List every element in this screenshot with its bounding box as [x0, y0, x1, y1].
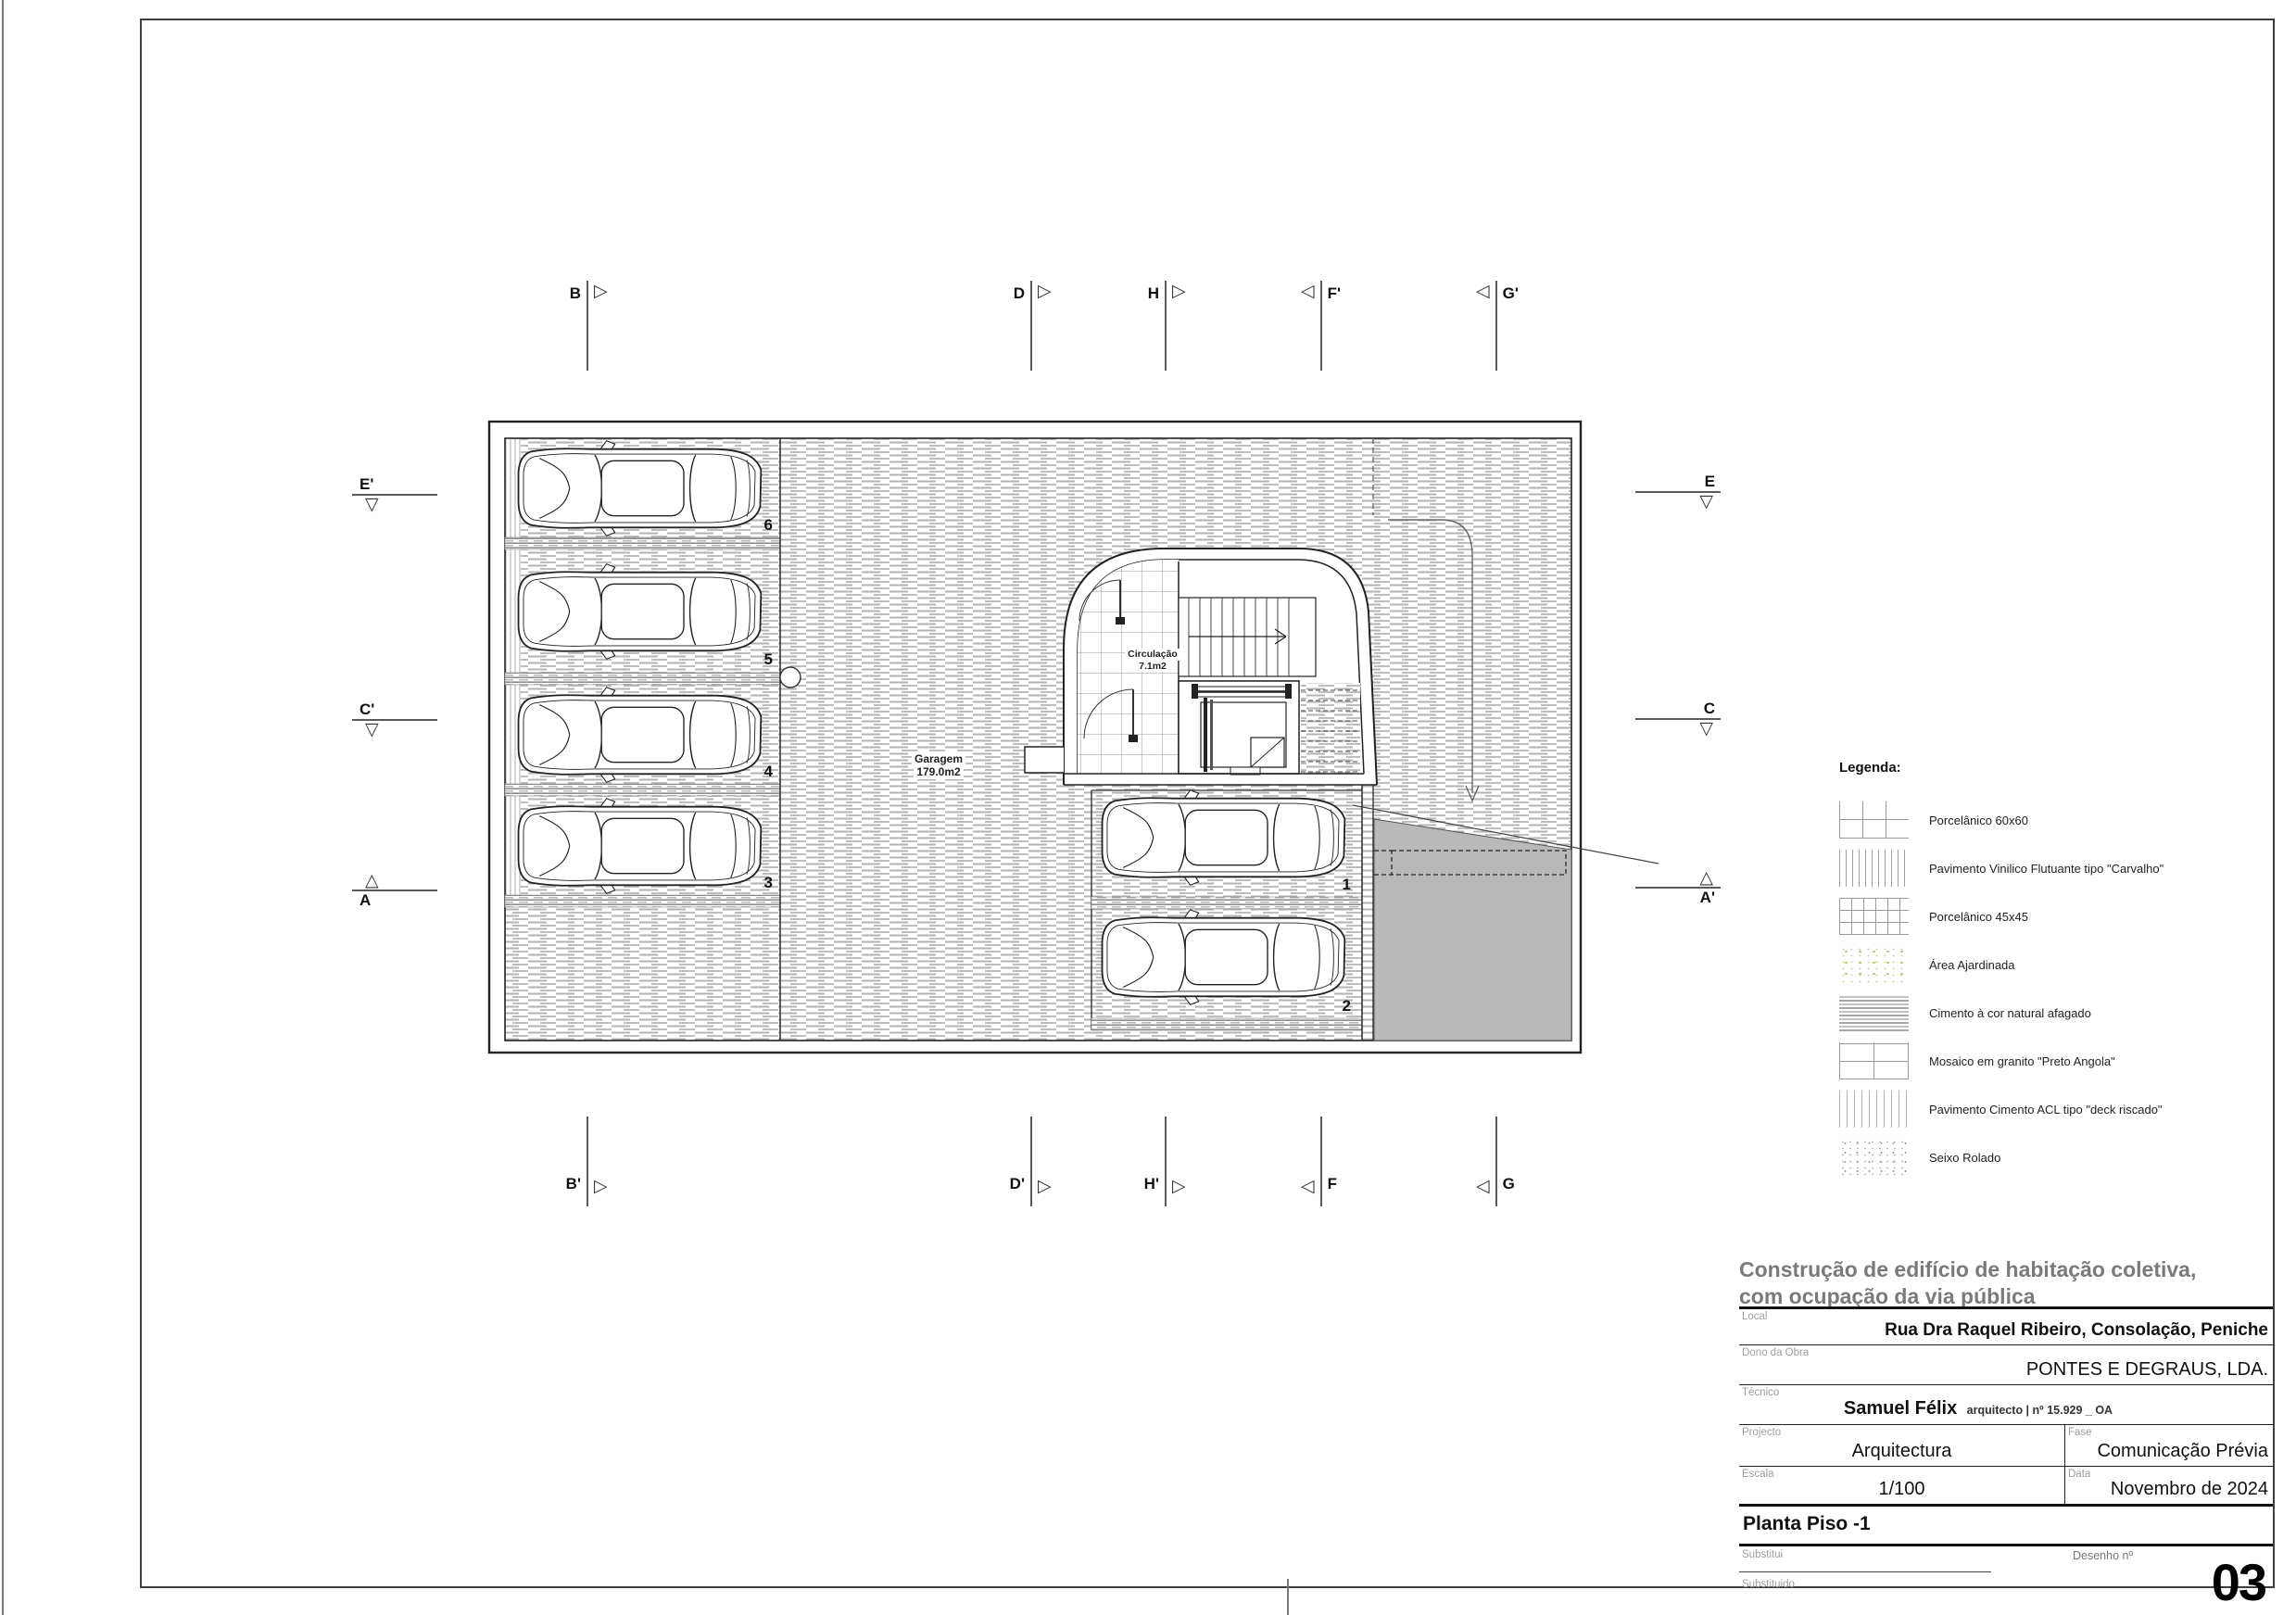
section-label: E — [1635, 473, 1721, 491]
legend-item-label: Mosaico em granito "Preto Angola" — [1929, 1054, 2115, 1068]
phase-value: Comunicação Prévia — [2097, 1441, 2268, 1462]
legend-item: Seixo Rolado — [1839, 1133, 2228, 1181]
section-marker-f-prime: ◁ F' — [1301, 281, 1352, 371]
section-line — [1030, 281, 1032, 371]
section-arrow-down-icon: ▽ — [365, 721, 437, 738]
owner-value: PONTES E DEGRAUS, LDA. — [2026, 1359, 2268, 1381]
section-marker-b-prime: B' ▷ — [557, 1117, 608, 1206]
replaces-label: Substitui — [1742, 1549, 1783, 1560]
section-label: E' — [352, 475, 437, 494]
section-line — [1320, 281, 1322, 371]
technician-label: Técnico — [1742, 1387, 1779, 1398]
section-label: A — [352, 891, 437, 910]
title-block-row-owner: Dono da Obra PONTES E DEGRAUS, LDA. — [1739, 1344, 2273, 1384]
phase-cell: Fase Comunicação Prévia — [2064, 1425, 2273, 1466]
section-marker-c: C ▽ — [1635, 700, 1721, 738]
legend-item-label: Pavimento Cimento ACL tipo "deck riscado… — [1929, 1103, 2163, 1117]
date-value: Novembro de 2024 — [2111, 1479, 2268, 1500]
section-label: F' — [1328, 284, 1352, 303]
section-arrow-right-icon: ▷ — [594, 283, 608, 300]
title-block-row-local: Local Rua Dra Raquel Ribeiro, Consolação… — [1739, 1306, 2273, 1344]
drawing-number-label: Desenho nº — [2073, 1549, 2133, 1562]
scale-cell: Escala 1/100 — [1739, 1467, 2064, 1504]
garden-area-swatch-icon — [1839, 946, 1909, 983]
room-label-garage: Garagem 179.0m2 — [880, 752, 997, 779]
owner-label: Dono da Obra — [1742, 1347, 1809, 1358]
section-arrow-left-icon: ◁ — [1301, 283, 1315, 300]
project-label: Projecto — [1742, 1427, 1781, 1438]
stall-number-4: 4 — [747, 763, 773, 781]
project-value: Arquitectura — [1739, 1441, 2064, 1462]
section-line — [1320, 1117, 1322, 1206]
legend-item: Área Ajardinada — [1839, 940, 2228, 989]
room-area: 7.1m2 — [1136, 661, 1169, 673]
section-line — [587, 281, 588, 371]
section-arrow-right-icon: ▷ — [1038, 1178, 1052, 1195]
room-label-circulation: Circulação 7.1m2 — [1104, 649, 1201, 672]
project-title-line1: Construção de edifício de habitação cole… — [1739, 1256, 2273, 1283]
section-label: C' — [352, 700, 437, 719]
section-marker-g-prime: ◁ G' — [1476, 281, 1527, 371]
technician-credentials: arquitecto | nº 15.929 _ OA — [1967, 1404, 2113, 1417]
section-arrow-right-icon: ▷ — [1172, 283, 1186, 300]
title-block: Construção de edifício de habitação cole… — [1739, 1256, 2273, 1599]
section-marker-h: H ▷ — [1135, 281, 1186, 371]
room-name: Garagem — [912, 752, 965, 765]
local-label: Local — [1742, 1311, 1768, 1322]
stall-number-6: 6 — [747, 516, 773, 535]
section-label: H' — [1135, 1175, 1159, 1193]
stall-number-1: 1 — [1325, 876, 1351, 894]
section-label: D' — [1001, 1175, 1025, 1193]
section-marker-h-prime: H' ▷ — [1135, 1117, 1186, 1206]
section-label: F — [1328, 1175, 1352, 1193]
grid-60-swatch-icon — [1839, 801, 1909, 839]
legend-item-label: Cimento à cor natural afagado — [1929, 1006, 2091, 1020]
section-arrow-up-icon: △ — [1699, 869, 1713, 887]
section-marker-c-prime: C' ▽ — [352, 700, 437, 738]
cement-swatch-icon — [1839, 994, 1909, 1031]
date-label: Data — [2068, 1469, 2090, 1480]
section-line — [1165, 281, 1167, 371]
section-label: H — [1135, 284, 1159, 303]
date-cell: Data Novembro de 2024 — [2064, 1467, 2273, 1504]
section-line — [587, 1117, 588, 1206]
title-block-row-technician: Técnico Samuel Félix arquitecto | nº 15.… — [1739, 1384, 2273, 1424]
scale-value: 1/100 — [1739, 1479, 2064, 1500]
legend-item: Pavimento Vinilico Flutuante tipo "Carva… — [1839, 844, 2228, 892]
project-cell: Projecto Arquitectura — [1739, 1425, 2064, 1466]
stall-number-5: 5 — [747, 650, 773, 669]
project-title: Construção de edifício de habitação cole… — [1739, 1256, 2273, 1306]
legend-item: Cimento à cor natural afagado — [1839, 989, 2228, 1037]
drawing-sheet: B ▷ D ▷ H ▷ ◁ F' ◁ G' B' ▷ D' ▷ H' ▷ ◁ — [0, 0, 2296, 1615]
section-arrow-down-icon: ▽ — [1699, 720, 1713, 738]
legend-item-label: Seixo Rolado — [1929, 1151, 2000, 1165]
title-block-row-project-phase: Projecto Arquitectura Fase Comunicação P… — [1739, 1424, 2273, 1466]
section-arrow-left-icon: ◁ — [1476, 1178, 1490, 1195]
section-line — [1495, 281, 1497, 371]
legend-item: Pavimento Cimento ACL tipo "deck riscado… — [1839, 1085, 2228, 1133]
stall-number-2: 2 — [1325, 997, 1351, 1016]
section-marker-f: ◁ F — [1301, 1117, 1352, 1206]
section-label: A' — [1635, 889, 1721, 907]
section-arrow-left-icon: ◁ — [1476, 283, 1490, 300]
stall-number-3: 3 — [747, 874, 773, 892]
local-value: Rua Dra Raquel Ribeiro, Consolação, Peni… — [1885, 1320, 2268, 1341]
legend-item-label: Porcelânico 45x45 — [1929, 910, 2028, 924]
section-arrow-right-icon: ▷ — [1172, 1178, 1186, 1195]
vinyl-floor-swatch-icon — [1839, 850, 1909, 887]
section-line — [1030, 1117, 1032, 1206]
legend-item: Porcelânico 45x45 — [1839, 892, 2228, 940]
replaced-label: Substituido — [1742, 1579, 1795, 1590]
section-marker-d-prime: D' ▷ — [1001, 1117, 1052, 1206]
section-label: G — [1503, 1175, 1527, 1193]
section-arrow-down-icon: ▽ — [1699, 493, 1713, 511]
sheet-title: Planta Piso -1 — [1743, 1513, 1871, 1535]
section-marker-g: ◁ G — [1476, 1117, 1527, 1206]
pebble-swatch-icon — [1839, 1139, 1909, 1176]
legend-item: Mosaico em granito "Preto Angola" — [1839, 1037, 2228, 1085]
title-block-row-revisions: Substitui Substituido Desenho nº 03 — [1739, 1544, 2273, 1599]
section-label: G' — [1503, 284, 1527, 303]
technician-line: Samuel Félix arquitecto | nº 15.929 _ OA — [1739, 1398, 2217, 1419]
section-arrow-right-icon: ▷ — [594, 1178, 608, 1195]
section-label: C — [1635, 700, 1721, 718]
title-block-row-sheet-title: Planta Piso -1 — [1739, 1504, 2273, 1544]
phase-label: Fase — [2068, 1427, 2092, 1438]
title-block-row-scale-date: Escala 1/100 Data Novembro de 2024 — [1739, 1466, 2273, 1504]
section-arrow-down-icon: ▽ — [365, 496, 437, 513]
technician-name: Samuel Félix — [1844, 1398, 1957, 1419]
section-arrow-up-icon: △ — [365, 872, 437, 890]
legend-item-label: Porcelânico 60x60 — [1929, 814, 2028, 827]
legend-item: Porcelânico 60x60 — [1839, 796, 2228, 844]
section-marker-b: B ▷ — [557, 281, 608, 371]
section-arrow-left-icon: ◁ — [1301, 1178, 1315, 1195]
deck-cement-swatch-icon — [1839, 1091, 1909, 1128]
section-label: B' — [557, 1175, 581, 1193]
replaces-line — [1739, 1571, 1991, 1572]
section-label: B — [557, 284, 581, 303]
legend: Legenda: Porcelânico 60x60 Pavimento Vin… — [1839, 760, 2228, 1181]
ramp-area — [1374, 819, 1571, 1041]
legend-title: Legenda: — [1839, 760, 2228, 776]
section-marker-a: △ A — [352, 872, 437, 910]
section-line — [1495, 1117, 1497, 1206]
section-marker-e: E ▽ — [1635, 473, 1721, 511]
section-marker-e-prime: E' ▽ — [352, 475, 437, 513]
section-line — [1165, 1117, 1167, 1206]
room-name: Circulação — [1125, 649, 1180, 661]
drawing-number: 03 — [2212, 1552, 2265, 1612]
legend-item-label: Área Ajardinada — [1929, 958, 2015, 972]
section-arrow-right-icon: ▷ — [1038, 283, 1052, 300]
granite-mosaic-swatch-icon — [1839, 1042, 1909, 1079]
grid-45-swatch-icon — [1839, 898, 1909, 935]
section-label: D — [1001, 284, 1025, 303]
legend-item-label: Pavimento Vinilico Flutuante tipo "Carva… — [1929, 862, 2164, 876]
section-marker-a-prime: △ A' — [1635, 869, 1721, 907]
room-area: 179.0m2 — [914, 765, 963, 778]
section-marker-d: D ▷ — [1001, 281, 1052, 371]
